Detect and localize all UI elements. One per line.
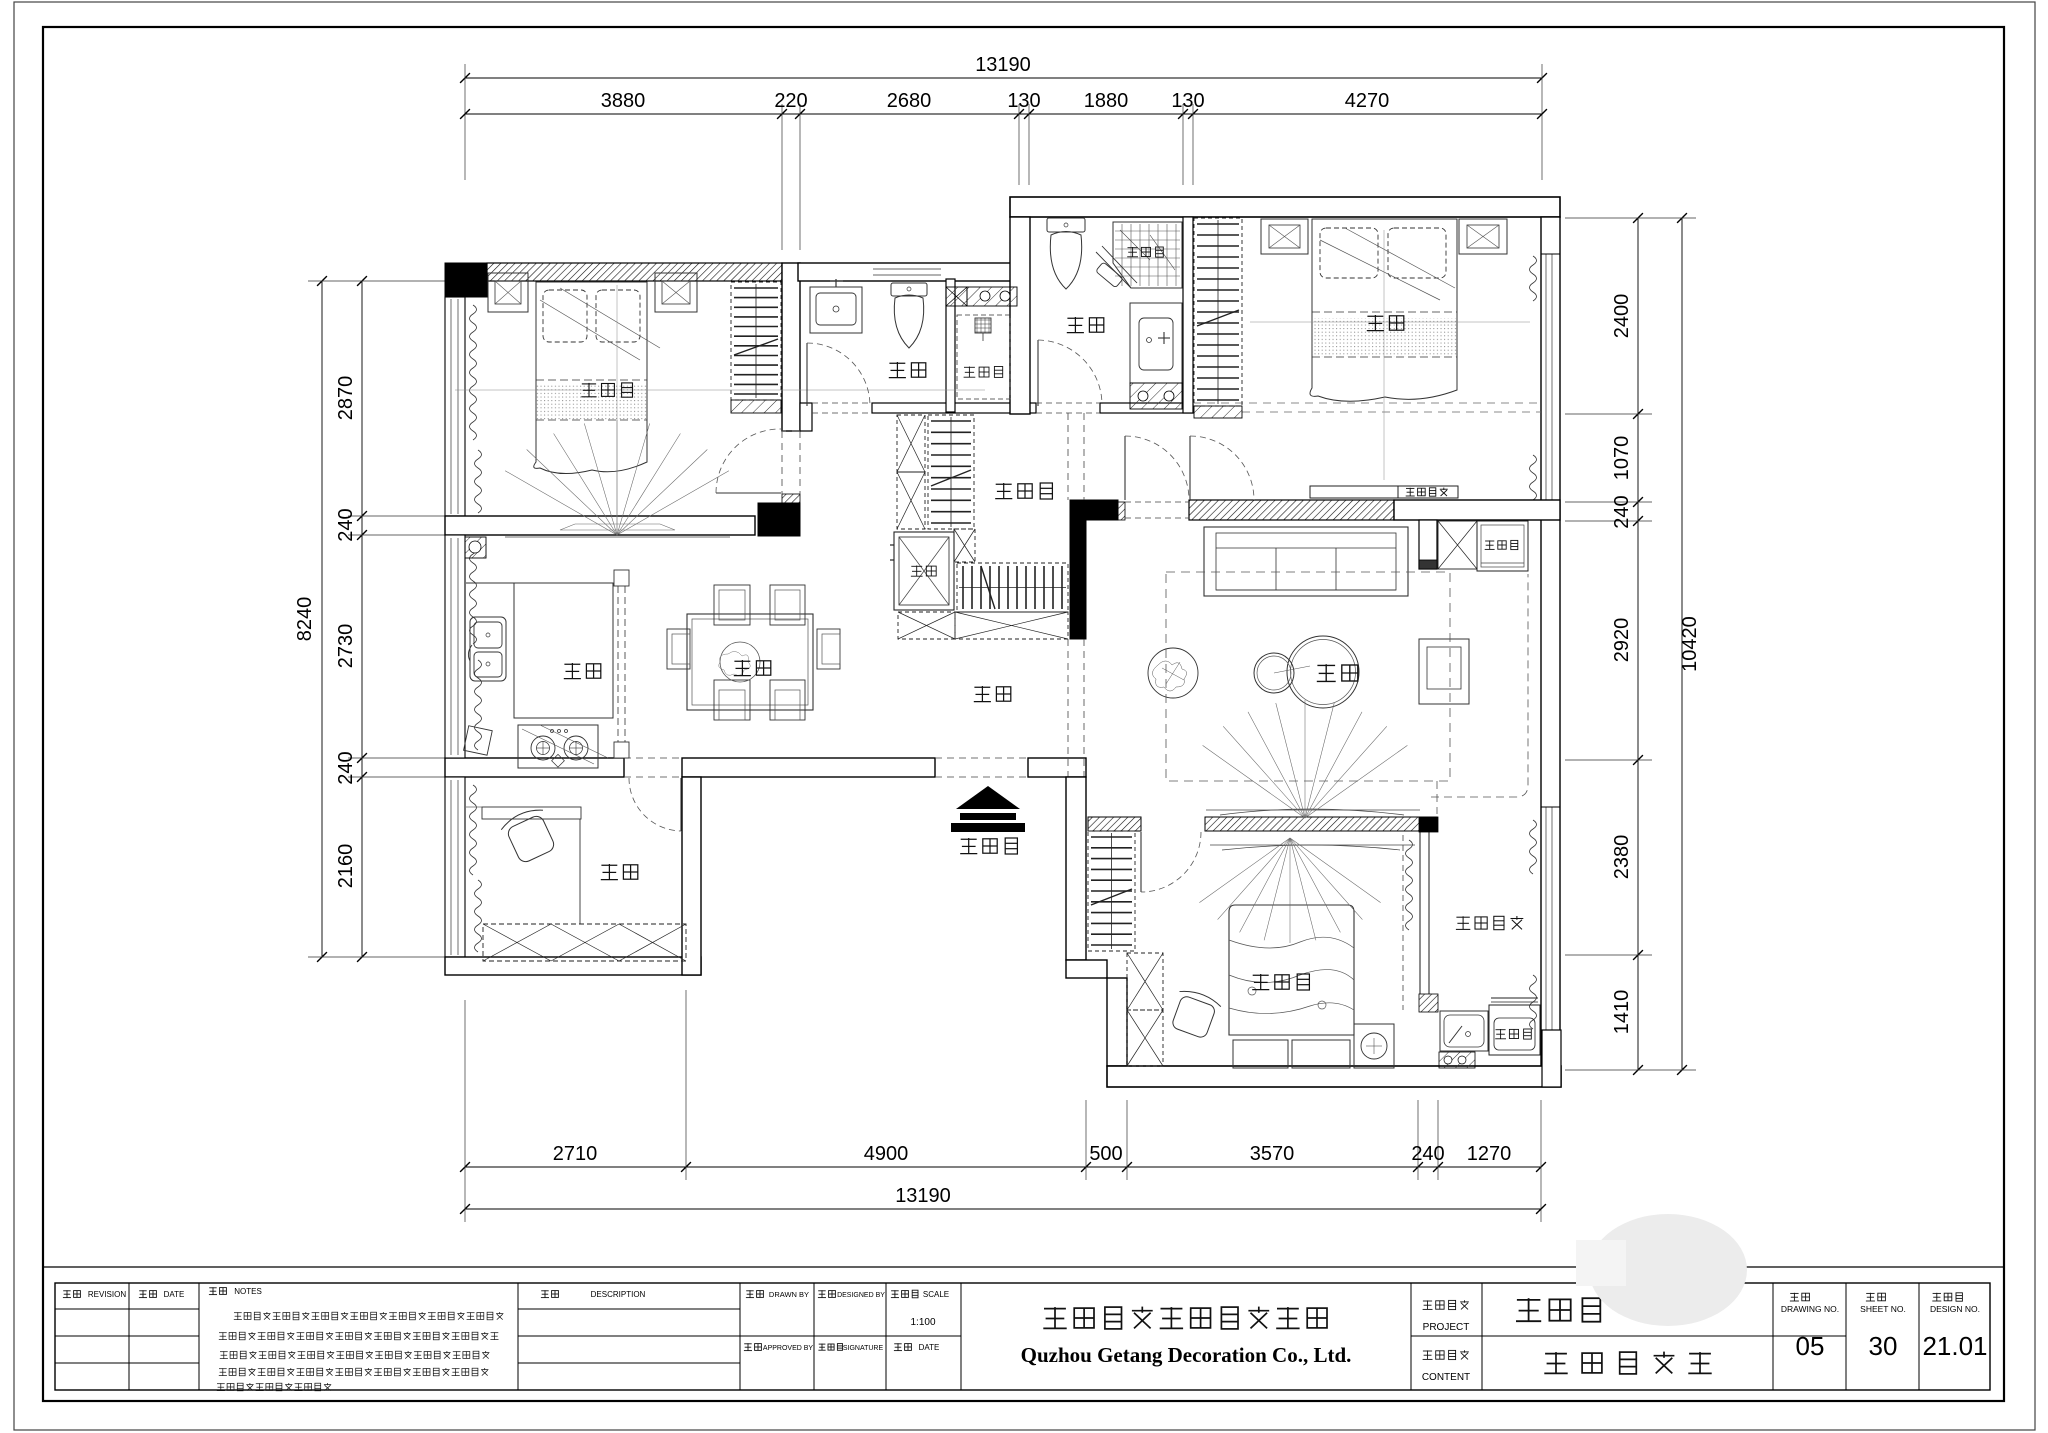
svg-text:13190: 13190 [975, 54, 1031, 76]
svg-text:SIGNATURE: SIGNATURE [843, 1345, 884, 1352]
svg-text:NOTES: NOTES [234, 1287, 262, 1296]
svg-text:21.01: 21.01 [1922, 1331, 1987, 1361]
svg-text:REVISION: REVISION [88, 1290, 126, 1299]
svg-text:240: 240 [335, 508, 357, 541]
svg-text:1880: 1880 [1084, 90, 1129, 112]
svg-text:3570: 3570 [1250, 1143, 1295, 1165]
svg-text:4900: 4900 [864, 1143, 909, 1165]
svg-text:DATE: DATE [919, 1343, 940, 1352]
svg-text:240: 240 [1611, 495, 1633, 528]
svg-text:1070: 1070 [1611, 436, 1633, 481]
svg-text:2730: 2730 [335, 624, 357, 669]
svg-text:SHEET NO.: SHEET NO. [1860, 1304, 1906, 1314]
svg-text:500: 500 [1089, 1143, 1122, 1165]
svg-text:DATE: DATE [164, 1290, 185, 1299]
svg-text:2870: 2870 [335, 376, 357, 421]
svg-text:APPROVED BY: APPROVED BY [763, 1345, 814, 1352]
svg-text:3880: 3880 [601, 90, 646, 112]
svg-text:SCALE: SCALE [923, 1290, 949, 1299]
svg-text:2380: 2380 [1611, 835, 1633, 880]
svg-text:CONTENT: CONTENT [1422, 1372, 1470, 1383]
svg-text:DRAWN BY: DRAWN BY [769, 1290, 809, 1299]
svg-text:10420: 10420 [1679, 616, 1701, 672]
svg-text:240: 240 [1411, 1143, 1444, 1165]
svg-text:2680: 2680 [887, 90, 932, 112]
svg-text:1270: 1270 [1467, 1143, 1512, 1165]
svg-text:Quzhou Getang Decoration Co.,: Quzhou Getang Decoration Co., Ltd. [1021, 1343, 1352, 1367]
svg-text:PROJECT: PROJECT [1423, 1322, 1470, 1333]
svg-text:130: 130 [1171, 90, 1204, 112]
svg-text:130: 130 [1007, 90, 1040, 112]
svg-text:DESIGN NO.: DESIGN NO. [1930, 1304, 1980, 1314]
svg-text:2400: 2400 [1611, 294, 1633, 339]
svg-text:DESCRIPTION: DESCRIPTION [591, 1290, 646, 1299]
svg-text:DRAWING NO.: DRAWING NO. [1781, 1304, 1839, 1314]
svg-text:1:100: 1:100 [910, 1317, 935, 1328]
svg-text:220: 220 [774, 90, 807, 112]
svg-text:05: 05 [1796, 1331, 1825, 1361]
svg-text:13190: 13190 [895, 1185, 951, 1207]
svg-text:1410: 1410 [1611, 990, 1633, 1035]
svg-text:2160: 2160 [335, 844, 357, 889]
svg-text:8240: 8240 [294, 597, 316, 642]
svg-text:30: 30 [1869, 1331, 1898, 1361]
svg-text:2710: 2710 [553, 1143, 598, 1165]
svg-text:4270: 4270 [1345, 90, 1390, 112]
svg-text:240: 240 [335, 751, 357, 784]
svg-text:DESIGNED BY: DESIGNED BY [837, 1292, 885, 1299]
svg-text:2920: 2920 [1611, 618, 1633, 663]
